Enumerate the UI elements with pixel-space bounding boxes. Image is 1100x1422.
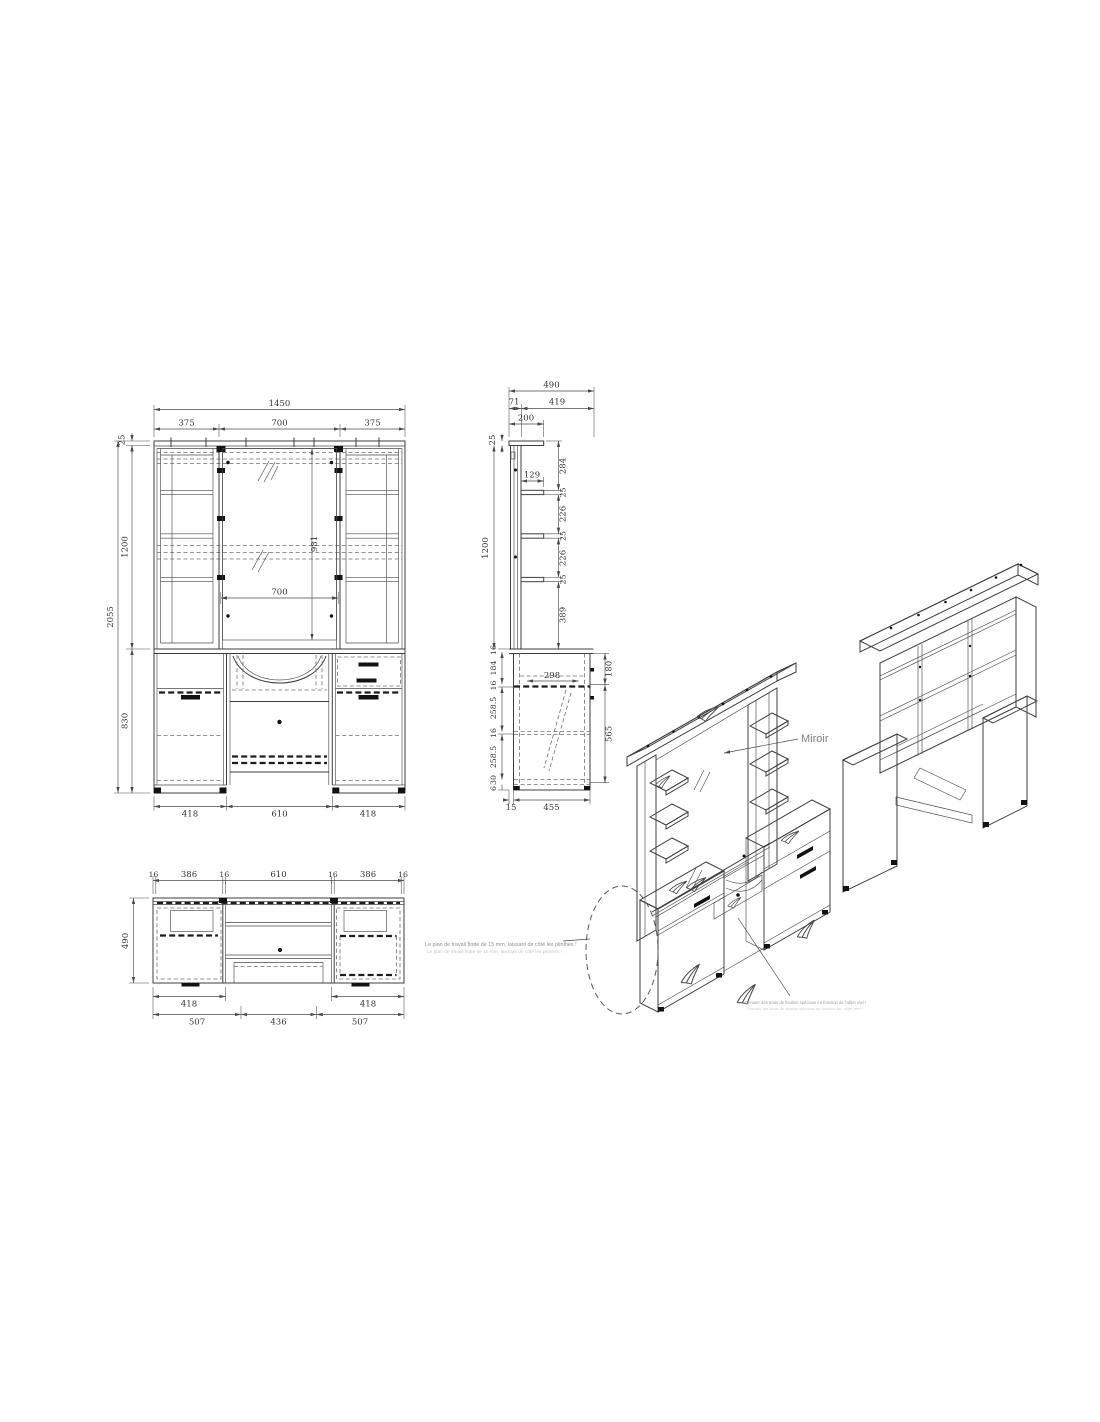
dim-side-top-thickness: 25 — [488, 435, 498, 446]
side-dimensions: 490 71 419 200 25 1200 129 — [481, 381, 615, 814]
dim-plan-drawer-left: 418 — [181, 1000, 197, 1010]
dim-plan-depth: 490 — [121, 933, 131, 949]
dim-side-left-6: 6 — [489, 786, 498, 791]
side-section-view: 490 71 419 200 25 1200 129 — [481, 381, 615, 814]
dim-side-base-depth: 455 — [543, 803, 559, 813]
dim-plan-507b: 507 — [352, 1018, 368, 1028]
rear-sloped-support — [914, 768, 966, 800]
dim-side-inner-width: 298 — [544, 671, 560, 681]
dim-front-seg-left: 375 — [178, 419, 194, 429]
dim-front-base-mid: 610 — [271, 810, 287, 820]
dim-plan-386a: 386 — [181, 870, 197, 880]
dim-side-upper-height: 1200 — [481, 537, 491, 559]
dim-front-height-total: 2055 — [106, 606, 116, 628]
page: 1450 375 700 375 25 1200 830 2055 981 — [0, 0, 1100, 1422]
dim-plan-610: 610 — [270, 870, 286, 880]
dim-side-left-16c: 16 — [489, 728, 498, 738]
dim-side-col-226a: 226 — [559, 506, 569, 522]
dim-side-shelf-depth: 129 — [524, 471, 540, 481]
isometric-rear-view — [843, 564, 1038, 892]
dim-side-base-body: 565 — [605, 726, 615, 742]
technical-drawing: 1450 375 700 375 25 1200 830 2055 981 — [0, 0, 1100, 1422]
dim-side-col-25b: 25 — [559, 531, 568, 541]
dim-side-col-25a: 25 — [559, 488, 568, 498]
dim-side-left-30: 30 — [489, 775, 498, 785]
dim-side-col-25c: 25 — [559, 575, 568, 585]
isometric-front-view: Miroir — [563, 663, 830, 1014]
dim-side-left-16a: 16 — [489, 645, 498, 655]
right-pedestal-front — [336, 654, 403, 786]
dim-plan-436: 436 — [270, 1018, 286, 1028]
dim-front-upper-height: 1200 — [121, 536, 131, 558]
dim-plan-16c: 16 — [328, 870, 338, 879]
note-fixing: Creuser des trous de fixation spéciaux e… — [745, 1000, 866, 1005]
dim-front-seg-right: 375 — [364, 419, 380, 429]
dim-side-top-shelf-depth: 200 — [518, 414, 534, 424]
dim-front-width-total: 1450 — [269, 399, 291, 409]
dim-side-col-226b: 226 — [559, 550, 569, 566]
rear-cornice-screws — [890, 564, 1023, 630]
dim-side-left-184: 184 — [489, 661, 498, 676]
dim-side-col-284: 284 — [559, 458, 569, 474]
mirror-callout-label: Miroir — [801, 733, 829, 745]
dim-front-seg-mid: 700 — [271, 419, 287, 429]
rear-left-pedestal — [843, 734, 907, 892]
note-worktop-faint: Le plan de travail flotte de 15 mm, lais… — [427, 949, 562, 955]
dim-side-kick-offset: 15 — [506, 803, 517, 813]
dim-front-base-right: 418 — [360, 810, 376, 820]
wood-grain-icons — [655, 700, 814, 1005]
iso-center-drawer — [714, 875, 762, 919]
front-elevation-view: 1450 375 700 375 25 1200 830 2055 981 — [106, 399, 405, 820]
dim-plan-16a: 16 — [148, 870, 158, 879]
dim-mirror-height: 981 — [310, 536, 320, 552]
annotations: Le plan de travail flotte de 15 mm, lais… — [425, 942, 866, 1011]
dim-front-top-thickness: 25 — [118, 435, 128, 446]
dim-front-base-height: 830 — [121, 713, 131, 729]
dim-plan-16d: 16 — [398, 870, 408, 879]
top-screw-ticks — [171, 438, 379, 448]
dim-side-worktop-drop: 180 — [605, 661, 615, 677]
plan-left-pedestal — [157, 908, 221, 987]
rear-bottom-rail — [896, 797, 972, 823]
dim-plan-drawer-right: 418 — [360, 1000, 376, 1010]
plan-view: 16 386 16 610 16 386 16 490 418 418 507 … — [121, 870, 408, 1028]
dim-side-left-16b: 16 — [489, 681, 498, 691]
note-fixing-faint: Creuser des trous de fixation spéciaux e… — [747, 1006, 863, 1011]
dim-side-front-depth: 419 — [549, 398, 565, 408]
rear-right-pedestal — [983, 696, 1037, 828]
plan-dimensions: 16 386 16 610 16 386 16 490 418 418 507 … — [121, 870, 408, 1028]
dim-mirror-width: 700 — [271, 588, 287, 598]
dim-plan-507a: 507 — [189, 1018, 205, 1028]
dim-front-base-left: 418 — [182, 810, 198, 820]
dim-side-depth-total: 490 — [543, 381, 559, 391]
mirror-hatch-icon — [252, 461, 278, 572]
dim-plan-16b: 16 — [219, 870, 229, 879]
center-basin-and-drawer — [230, 655, 329, 772]
plan-right-pedestal — [337, 908, 401, 987]
note-worktop: Le plan de travail flotte de 15 mm, lais… — [425, 942, 577, 948]
plan-center-rails — [226, 923, 332, 984]
worktop-highlight-ellipse — [586, 886, 658, 1014]
dim-side-left-258a: 258.5 — [489, 697, 498, 719]
dim-plan-386b: 386 — [360, 870, 376, 880]
dim-side-left-258b: 258.5 — [489, 746, 498, 768]
left-pedestal-front — [157, 654, 224, 786]
dim-side-back-offset: 71 — [509, 398, 520, 408]
dim-side-col-389: 389 — [559, 607, 569, 623]
